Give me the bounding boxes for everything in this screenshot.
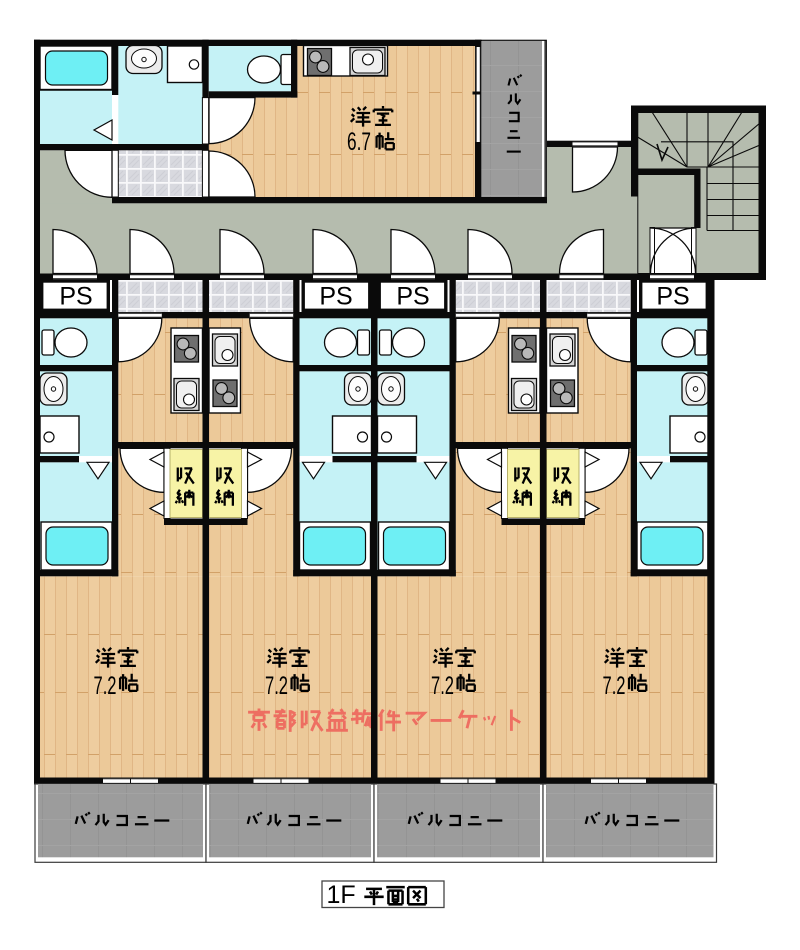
- svg-text:PS: PS: [656, 283, 689, 311]
- svg-text:1F: 1F: [327, 881, 356, 909]
- svg-text:PS: PS: [396, 283, 429, 311]
- svg-text:PS: PS: [319, 283, 352, 311]
- svg-text:PS: PS: [59, 283, 92, 311]
- svg-text:7.2: 7.2: [603, 672, 626, 700]
- svg-text:7.2: 7.2: [265, 672, 288, 700]
- svg-text:7.2: 7.2: [431, 672, 454, 700]
- svg-text:6.7: 6.7: [347, 128, 371, 156]
- svg-text:7.2: 7.2: [94, 672, 117, 700]
